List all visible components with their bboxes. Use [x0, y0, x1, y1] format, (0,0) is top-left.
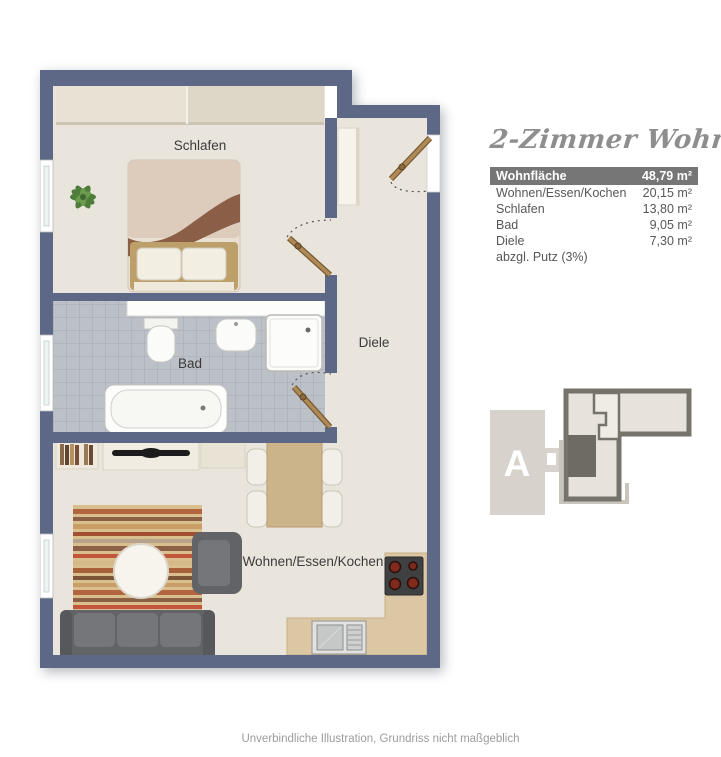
area-header-label: Wohnfläche [496, 169, 567, 183]
window-wohnen [40, 534, 53, 598]
area-table-row: abzgl. Putz (3%) [490, 249, 698, 265]
area-row-value: 9,05 m² [650, 218, 692, 232]
building-letter: A [504, 443, 531, 484]
hall-wardrobe [338, 128, 359, 205]
area-table-row: Bad 9,05 m² [490, 217, 698, 233]
disclaimer-text: Unverbindliche Illustration, Grundriss n… [40, 733, 721, 745]
wall-niche [325, 86, 337, 118]
info-panel: 2-Zimmer Wohnung Wohnfläche 48,79 m² Woh… [490, 120, 698, 265]
area-table: Wohnfläche 48,79 m² Wohnen/Essen/Kochen … [490, 167, 698, 265]
area-row-label: abzgl. Putz (3%) [496, 250, 588, 264]
coffee-table [114, 544, 168, 598]
pillow [182, 248, 226, 280]
room-label-bad: Bad [178, 356, 202, 371]
area-header-value: 48,79 m² [642, 169, 692, 183]
wash-basin [216, 319, 256, 351]
bookshelf [56, 441, 98, 469]
area-row-value: 13,80 m² [643, 202, 692, 216]
area-table-row: Diele 7,30 m² [490, 233, 698, 249]
wardrobe-closets [56, 86, 324, 125]
tv-sideboard [103, 440, 199, 470]
room-label-wohnen: Wohnen/Essen/Kochen [243, 554, 384, 569]
toilet [144, 318, 178, 362]
dining-chair [247, 449, 267, 485]
dining-chair [322, 491, 342, 527]
area-row-value: 20,15 m² [643, 186, 692, 200]
bathtub [105, 385, 227, 433]
floor-plan: Schlafen Bad Diele Wohnen/Essen/Kochen [40, 70, 440, 668]
building-locator: A [488, 383, 700, 523]
room-label-diele: Diele [359, 335, 390, 350]
sofa [60, 610, 215, 660]
window-schlafen [40, 160, 53, 232]
dining-table [267, 441, 322, 527]
area-table-row: Schlafen 13,80 m² [490, 201, 698, 217]
kitchen-sink [312, 621, 366, 654]
apartment-title: 2-Zimmer Wohnung [488, 120, 700, 160]
room-label-schlafen: Schlafen [174, 138, 227, 153]
double-bed [128, 160, 240, 292]
area-table-header-row: Wohnfläche 48,79 m² [490, 167, 698, 185]
area-table-row: Wohnen/Essen/Kochen 20,15 m² [490, 185, 698, 201]
area-row-label: Bad [496, 218, 518, 232]
dining-chair [247, 491, 267, 527]
area-row-label: Wohnen/Essen/Kochen [496, 186, 626, 200]
pillow [137, 248, 181, 280]
window-bad [40, 335, 53, 411]
area-row-value: 7,30 m² [650, 234, 692, 248]
stove [385, 557, 423, 595]
shower [266, 315, 322, 371]
area-row-label: Schlafen [496, 202, 545, 216]
armchair [192, 532, 242, 594]
bathroom-shelf [127, 300, 325, 316]
sideboard [201, 440, 245, 468]
floorplan-page: Schlafen Bad Diele Wohnen/Essen/Kochen 2… [0, 0, 721, 757]
highlighted-unit [568, 435, 596, 477]
area-row-label: Diele [496, 234, 525, 248]
dining-chair [322, 449, 342, 485]
dining-set [247, 441, 342, 527]
